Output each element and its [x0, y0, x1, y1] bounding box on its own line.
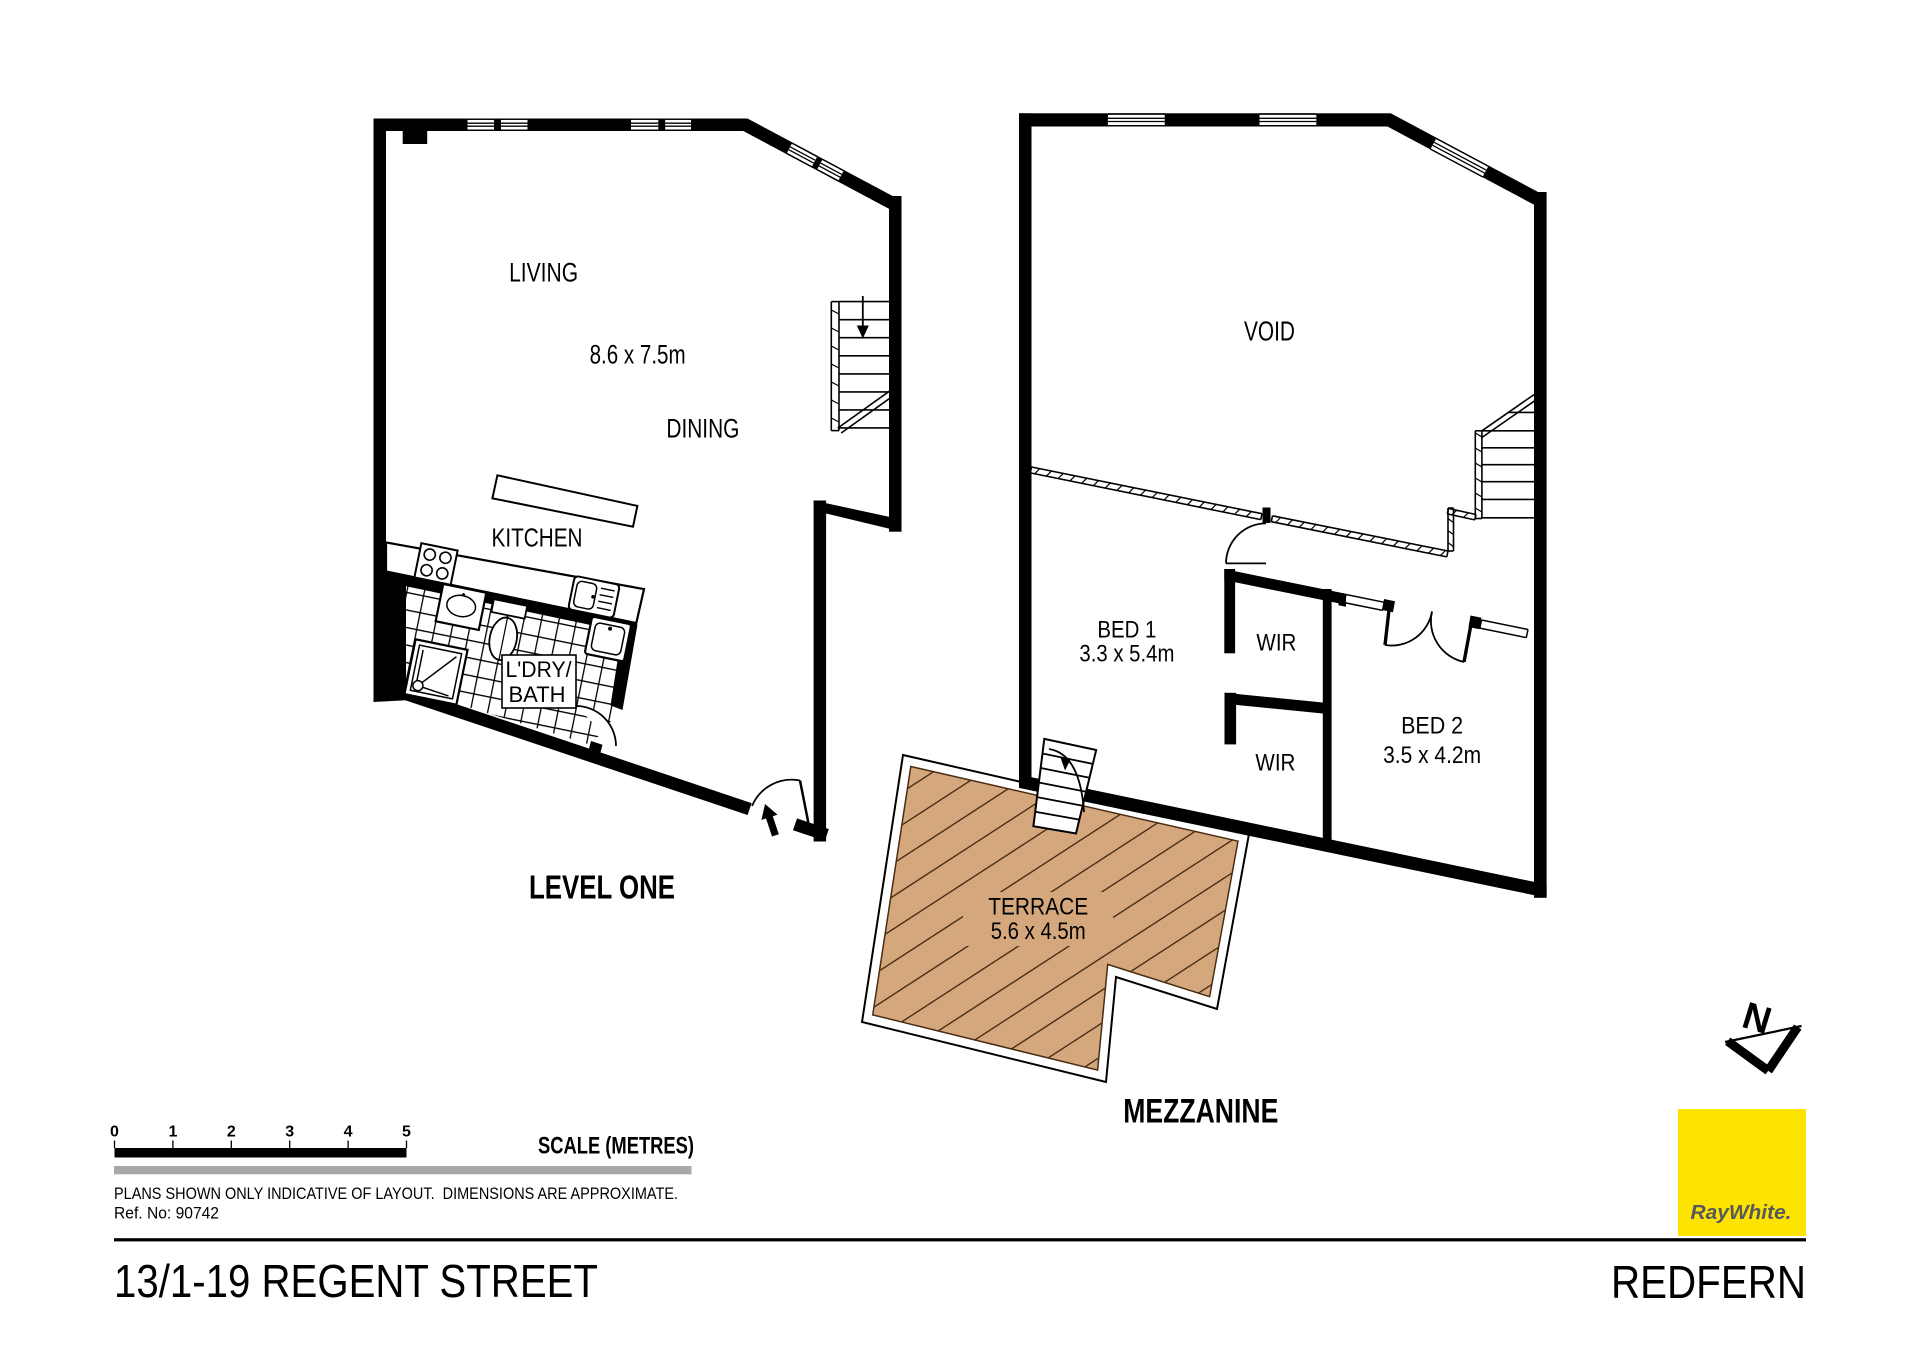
svg-text:0: 0 [110, 1124, 119, 1141]
svg-text:Ref. No: 90742: Ref. No: 90742 [114, 1204, 219, 1223]
svg-text:TERRACE: TERRACE [988, 894, 1088, 921]
svg-text:BED 2: BED 2 [1401, 713, 1463, 740]
svg-text:5.6 x 4.5m: 5.6 x 4.5m [991, 918, 1086, 945]
svg-text:BATH: BATH [509, 682, 566, 707]
svg-text:2: 2 [227, 1124, 236, 1141]
svg-text:13/1-19 REGENT STREET: 13/1-19 REGENT STREET [114, 1255, 598, 1307]
svg-text:SCALE (METRES): SCALE (METRES) [538, 1133, 694, 1160]
svg-text:WIR: WIR [1255, 750, 1295, 777]
svg-text:BED 1: BED 1 [1097, 617, 1156, 644]
svg-text:REDFERN: REDFERN [1611, 1256, 1806, 1308]
svg-text:4: 4 [344, 1124, 353, 1141]
svg-text:KITCHEN: KITCHEN [492, 523, 583, 553]
svg-text:L'DRY/: L'DRY/ [506, 657, 573, 682]
svg-text:DINING: DINING [666, 414, 739, 444]
svg-text:1: 1 [168, 1124, 177, 1141]
svg-text:5: 5 [402, 1124, 411, 1141]
svg-text:RayWhite.: RayWhite. [1691, 1201, 1792, 1224]
svg-text:3.3 x 5.4m: 3.3 x 5.4m [1079, 641, 1174, 668]
svg-text:PLANS SHOWN ONLY INDICATIVE OF: PLANS SHOWN ONLY INDICATIVE OF LAYOUT. D… [114, 1184, 678, 1203]
svg-text:WIR: WIR [1256, 630, 1296, 657]
svg-text:VOID: VOID [1244, 316, 1295, 347]
svg-text:LEVEL ONE: LEVEL ONE [529, 869, 675, 906]
svg-text:MEZZANINE: MEZZANINE [1123, 1093, 1278, 1131]
svg-text:8.6 x 7.5m: 8.6 x 7.5m [590, 340, 686, 370]
svg-text:3: 3 [285, 1124, 294, 1141]
svg-text:3.5 x 4.2m: 3.5 x 4.2m [1383, 742, 1481, 769]
svg-text:LIVING: LIVING [509, 258, 578, 288]
